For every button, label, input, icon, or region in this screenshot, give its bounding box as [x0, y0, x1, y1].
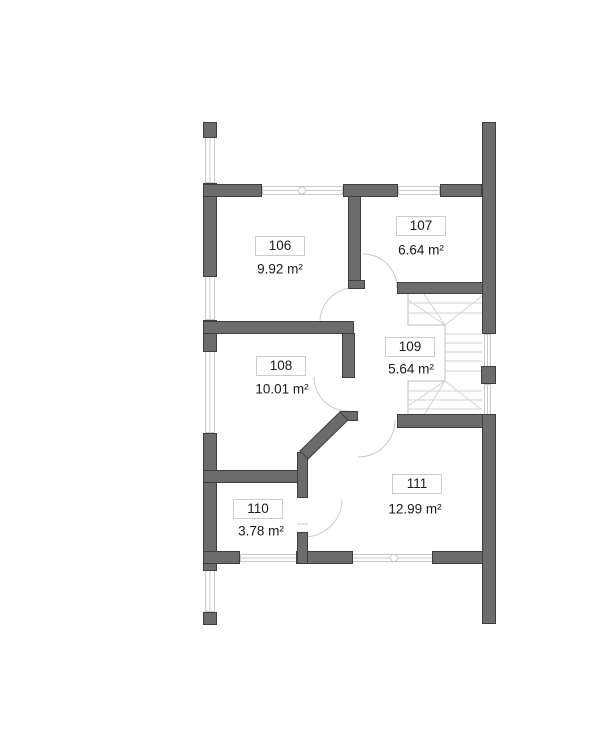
- room-number-box: 109: [385, 337, 435, 357]
- wall: [433, 552, 483, 564]
- wall-diagonal: [300, 412, 348, 459]
- walls: [204, 123, 496, 625]
- room-number-box: 108: [256, 356, 306, 376]
- room-number-box: 106: [255, 236, 305, 256]
- room-number-box: 111: [392, 474, 442, 494]
- wall: [343, 334, 355, 378]
- room-area-111: 12.99 m²: [388, 502, 441, 517]
- floor-plan-canvas: 106 9.92 m² 107 6.64 m² 108 10.01 m² 109…: [0, 0, 615, 748]
- room-area-106: 9.92 m²: [257, 262, 303, 277]
- room-area-109: 5.64 m²: [388, 362, 434, 377]
- wall: [483, 415, 496, 624]
- door-arc-room-110: [304, 499, 342, 537]
- wall: [349, 197, 361, 282]
- wall: [204, 184, 217, 277]
- room-area-110: 3.78 m²: [238, 524, 284, 539]
- wall-pier: [482, 367, 496, 384]
- door-arc-room-108: [314, 377, 348, 411]
- wall: [204, 471, 303, 483]
- room-label-106: 106: [255, 236, 305, 256]
- wall: [298, 453, 308, 498]
- wall: [441, 185, 482, 197]
- room-label-107: 107: [396, 216, 446, 236]
- room-area-107: 6.64 m²: [398, 243, 444, 258]
- door-arc-room-107: [363, 254, 397, 288]
- room-label-108: 108: [256, 356, 306, 376]
- door-arc-room-106: [320, 288, 354, 322]
- door-arcs: [297, 254, 397, 537]
- room-label-109: 109: [385, 337, 435, 357]
- wall: [298, 533, 308, 564]
- wall-pier: [204, 613, 217, 625]
- room-label-111: 111: [392, 474, 442, 494]
- room-number-box: 107: [396, 216, 446, 236]
- room-number-box: 110: [233, 499, 283, 519]
- floor-plan-drawing: [0, 0, 615, 748]
- wall: [204, 322, 354, 334]
- wall: [398, 415, 483, 428]
- room-area-108: 10.01 m²: [255, 382, 308, 397]
- room-label-110: 110: [233, 499, 283, 519]
- door-arc-room-111: [358, 420, 395, 457]
- wall: [204, 185, 262, 197]
- wall: [349, 281, 365, 289]
- wall: [483, 123, 496, 334]
- wall: [344, 185, 398, 197]
- wall-pier: [204, 123, 217, 138]
- wall: [398, 283, 483, 294]
- wall: [204, 552, 240, 564]
- wall: [204, 434, 217, 571]
